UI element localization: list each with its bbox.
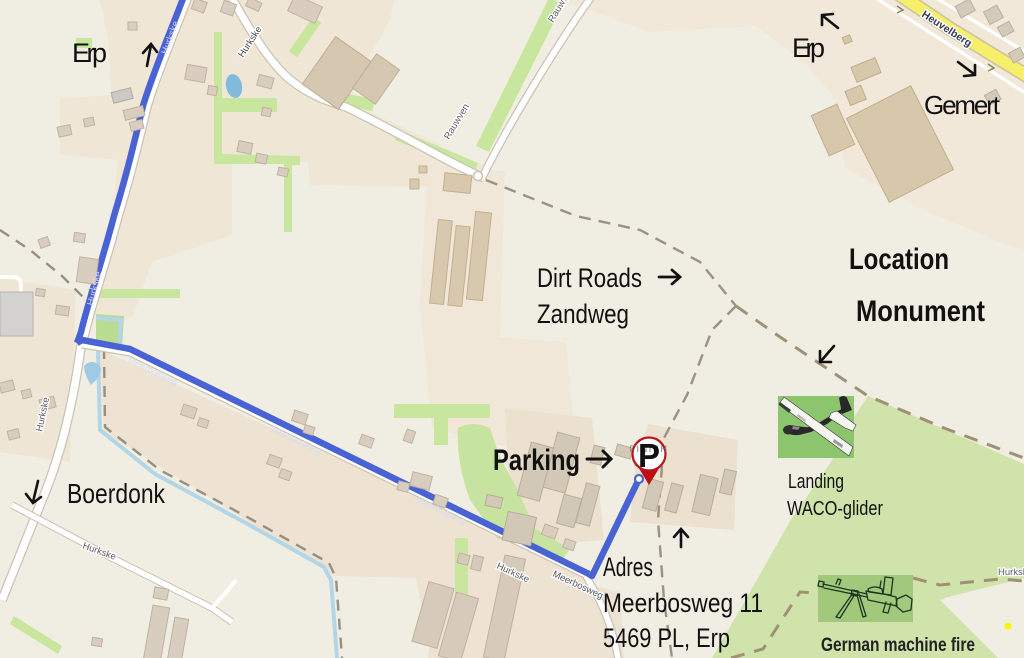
svg-text:5469 PL, Erp: 5469 PL, Erp	[603, 623, 730, 653]
svg-text:Hurkske: Hurkske	[998, 567, 1024, 578]
svg-text:German machine fire: German machine fire	[821, 635, 975, 656]
svg-text:Zandweg: Zandweg	[537, 299, 629, 329]
svg-text:Gemert: Gemert	[924, 90, 1001, 120]
svg-text:Erp: Erp	[72, 38, 107, 68]
svg-text:Adres: Adres	[603, 552, 653, 582]
svg-text:Monument: Monument	[856, 295, 985, 328]
svg-text:Location: Location	[849, 243, 949, 276]
svg-text:Erp: Erp	[792, 33, 825, 63]
svg-text:Dirt Roads: Dirt Roads	[537, 263, 642, 293]
svg-text:Parking: Parking	[493, 444, 580, 477]
svg-text:Landing: Landing	[788, 471, 844, 493]
svg-text:Meerbosweg 11: Meerbosweg 11	[603, 588, 763, 618]
svg-text:Boerdonk: Boerdonk	[67, 478, 166, 509]
svg-text:WACO-glider: WACO-glider	[787, 498, 883, 520]
svg-text:P: P	[638, 437, 660, 474]
